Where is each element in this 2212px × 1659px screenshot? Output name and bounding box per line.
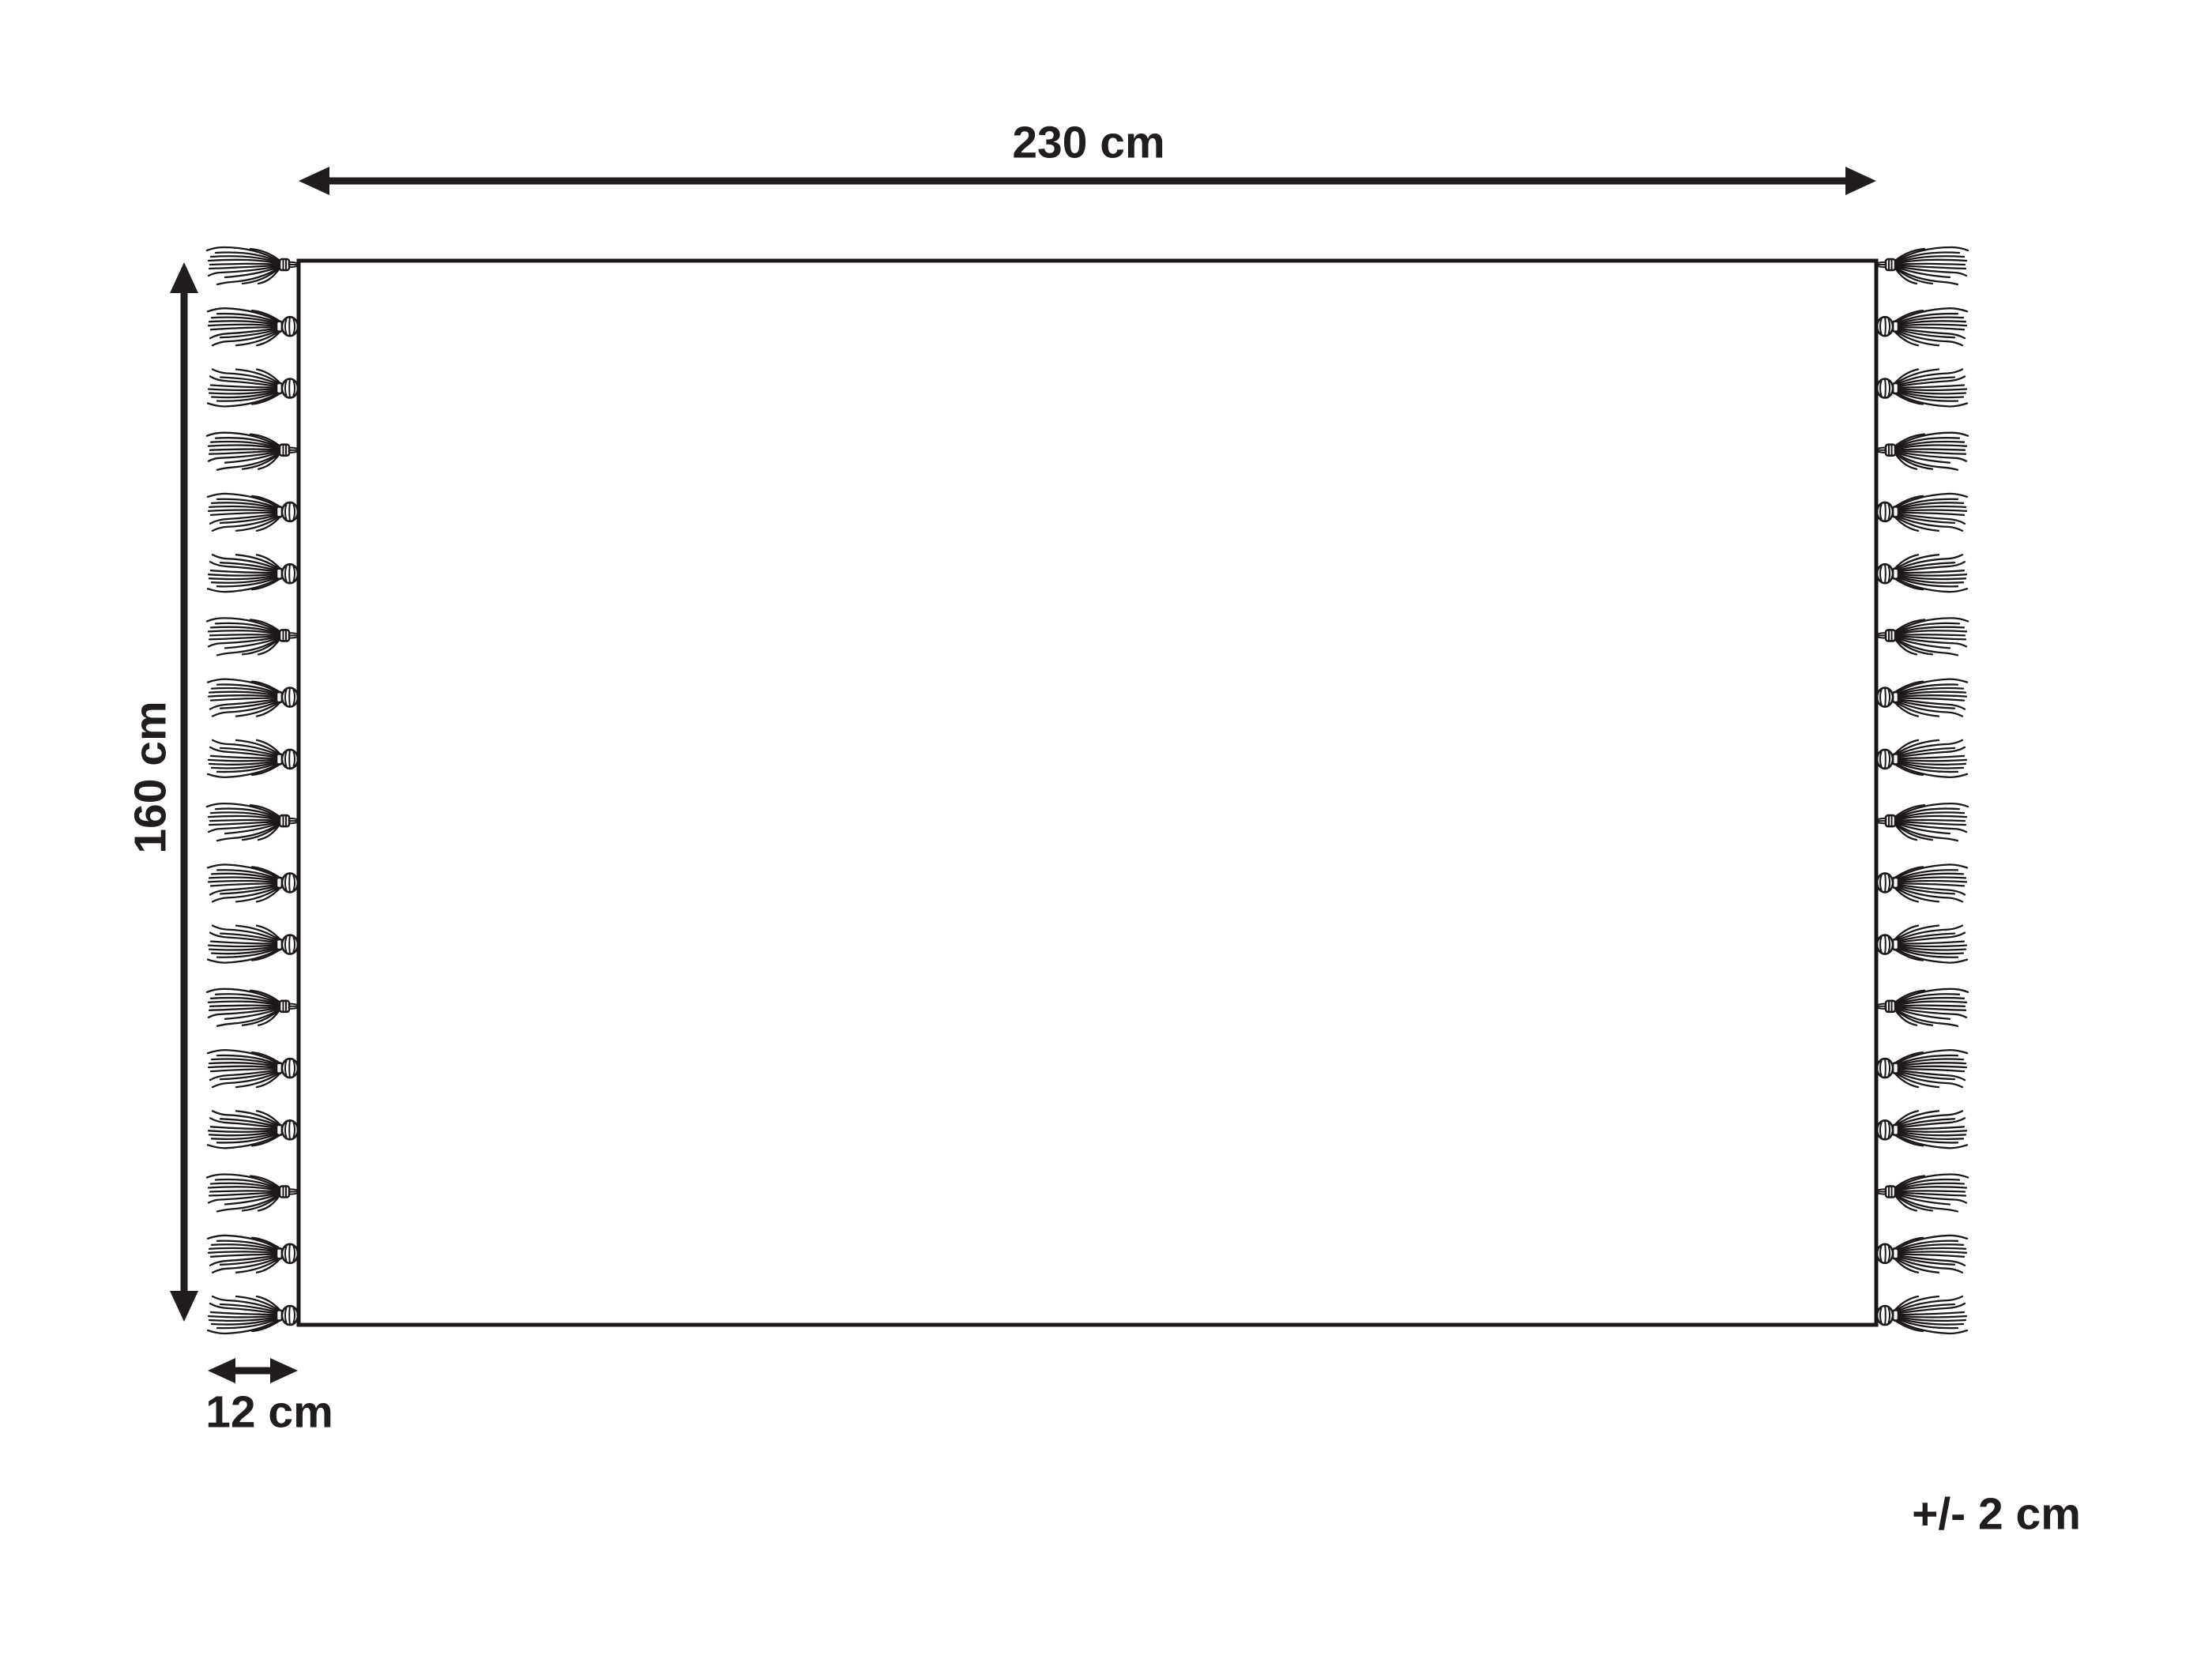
tassel — [208, 370, 298, 407]
tassel — [1877, 370, 1967, 407]
tassel — [207, 989, 299, 1026]
tassel — [208, 1236, 298, 1273]
tassel — [208, 864, 298, 901]
tassel — [207, 1175, 299, 1212]
tassel — [208, 1050, 298, 1087]
tassel — [207, 618, 299, 655]
tassel-length-label: 12 cm — [205, 1390, 333, 1435]
tassel — [1875, 618, 1968, 655]
tassel — [1877, 740, 1967, 777]
tassel — [1875, 803, 1968, 841]
tassel — [1877, 1050, 1967, 1087]
tassel — [1877, 555, 1967, 592]
tassel — [208, 308, 298, 345]
tassel — [1877, 308, 1967, 345]
tassel — [207, 247, 299, 284]
tassel — [1877, 1236, 1967, 1273]
tassel — [208, 679, 298, 717]
tassel — [1877, 926, 1967, 963]
tassel — [1877, 1111, 1967, 1148]
tassel — [1875, 247, 1968, 284]
tassel-fringe-right — [1875, 247, 1968, 1334]
tassel — [1875, 1175, 1968, 1212]
tassel — [1877, 1296, 1967, 1334]
tassel — [208, 1296, 298, 1334]
tassel — [207, 433, 299, 470]
tassel — [1877, 494, 1967, 531]
tassel — [208, 555, 298, 592]
tassel — [1877, 864, 1967, 901]
tassel — [208, 494, 298, 531]
rug-outline — [299, 261, 1876, 1325]
tassel — [208, 740, 298, 777]
tassel — [208, 926, 298, 963]
width-label: 230 cm — [1012, 121, 1164, 166]
diagram-canvas: 230 cm 160 cm 12 cm +/- 2 cm — [0, 0, 2212, 1659]
tassel — [208, 1111, 298, 1148]
tassel — [1875, 989, 1968, 1026]
tolerance-label: +/- 2 cm — [1912, 1492, 2081, 1537]
height-label: 160 cm — [129, 701, 174, 853]
tassel-fringe-left — [207, 247, 299, 1334]
width-dimension-arrow — [299, 167, 1876, 195]
tassel — [207, 803, 299, 841]
tassel — [1877, 679, 1967, 717]
tassel-length-arrow — [208, 1358, 298, 1383]
tassel — [1875, 433, 1968, 470]
